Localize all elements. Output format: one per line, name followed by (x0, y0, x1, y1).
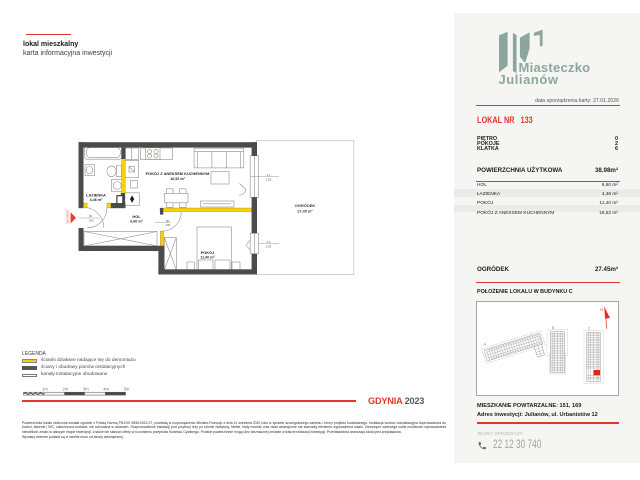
svg-text:C: C (588, 327, 591, 331)
svg-text:POKÓJ: POKÓJ (201, 250, 215, 255)
svg-text:2m: 2m (62, 386, 68, 391)
svg-text:6,60 m²: 6,60 m² (130, 219, 143, 223)
svg-text:WEJŚCIE: WEJŚCIE (65, 210, 70, 224)
svg-text:1,5: 1,5 (267, 240, 271, 244)
svg-text:N: N (600, 308, 603, 312)
svg-text:205: 205 (166, 223, 171, 227)
svg-text:B: B (552, 326, 555, 330)
svg-text:205: 205 (89, 219, 94, 223)
svg-text:80: 80 (166, 219, 170, 223)
svg-text:11,40 m²: 11,40 m² (200, 255, 215, 259)
svg-text:90: 90 (89, 214, 93, 218)
svg-text:3m: 3m (83, 386, 89, 391)
svg-text:5m: 5m (124, 386, 130, 391)
svg-text:2,1: 2,1 (267, 173, 271, 177)
svg-text:1m: 1m (42, 386, 48, 391)
svg-text:ŁAZIENKA: ŁAZIENKA (86, 193, 106, 198)
svg-text:27,45 m²: 27,45 m² (297, 210, 313, 214)
svg-text:HOL: HOL (132, 214, 141, 219)
svg-text:16,52 m²: 16,52 m² (170, 177, 186, 181)
svg-text:2,05: 2,05 (266, 178, 272, 182)
svg-text:4m: 4m (103, 386, 109, 391)
svg-text:A: A (484, 343, 487, 347)
svg-text:POKÓJ Z ANEKSEM KUCHENNYM: POKÓJ Z ANEKSEM KUCHENNYM (146, 171, 210, 176)
svg-text:4,46 m²: 4,46 m² (90, 198, 103, 202)
svg-text:2,05: 2,05 (266, 245, 272, 249)
svg-text:OGRÓDEK: OGRÓDEK (295, 203, 316, 208)
